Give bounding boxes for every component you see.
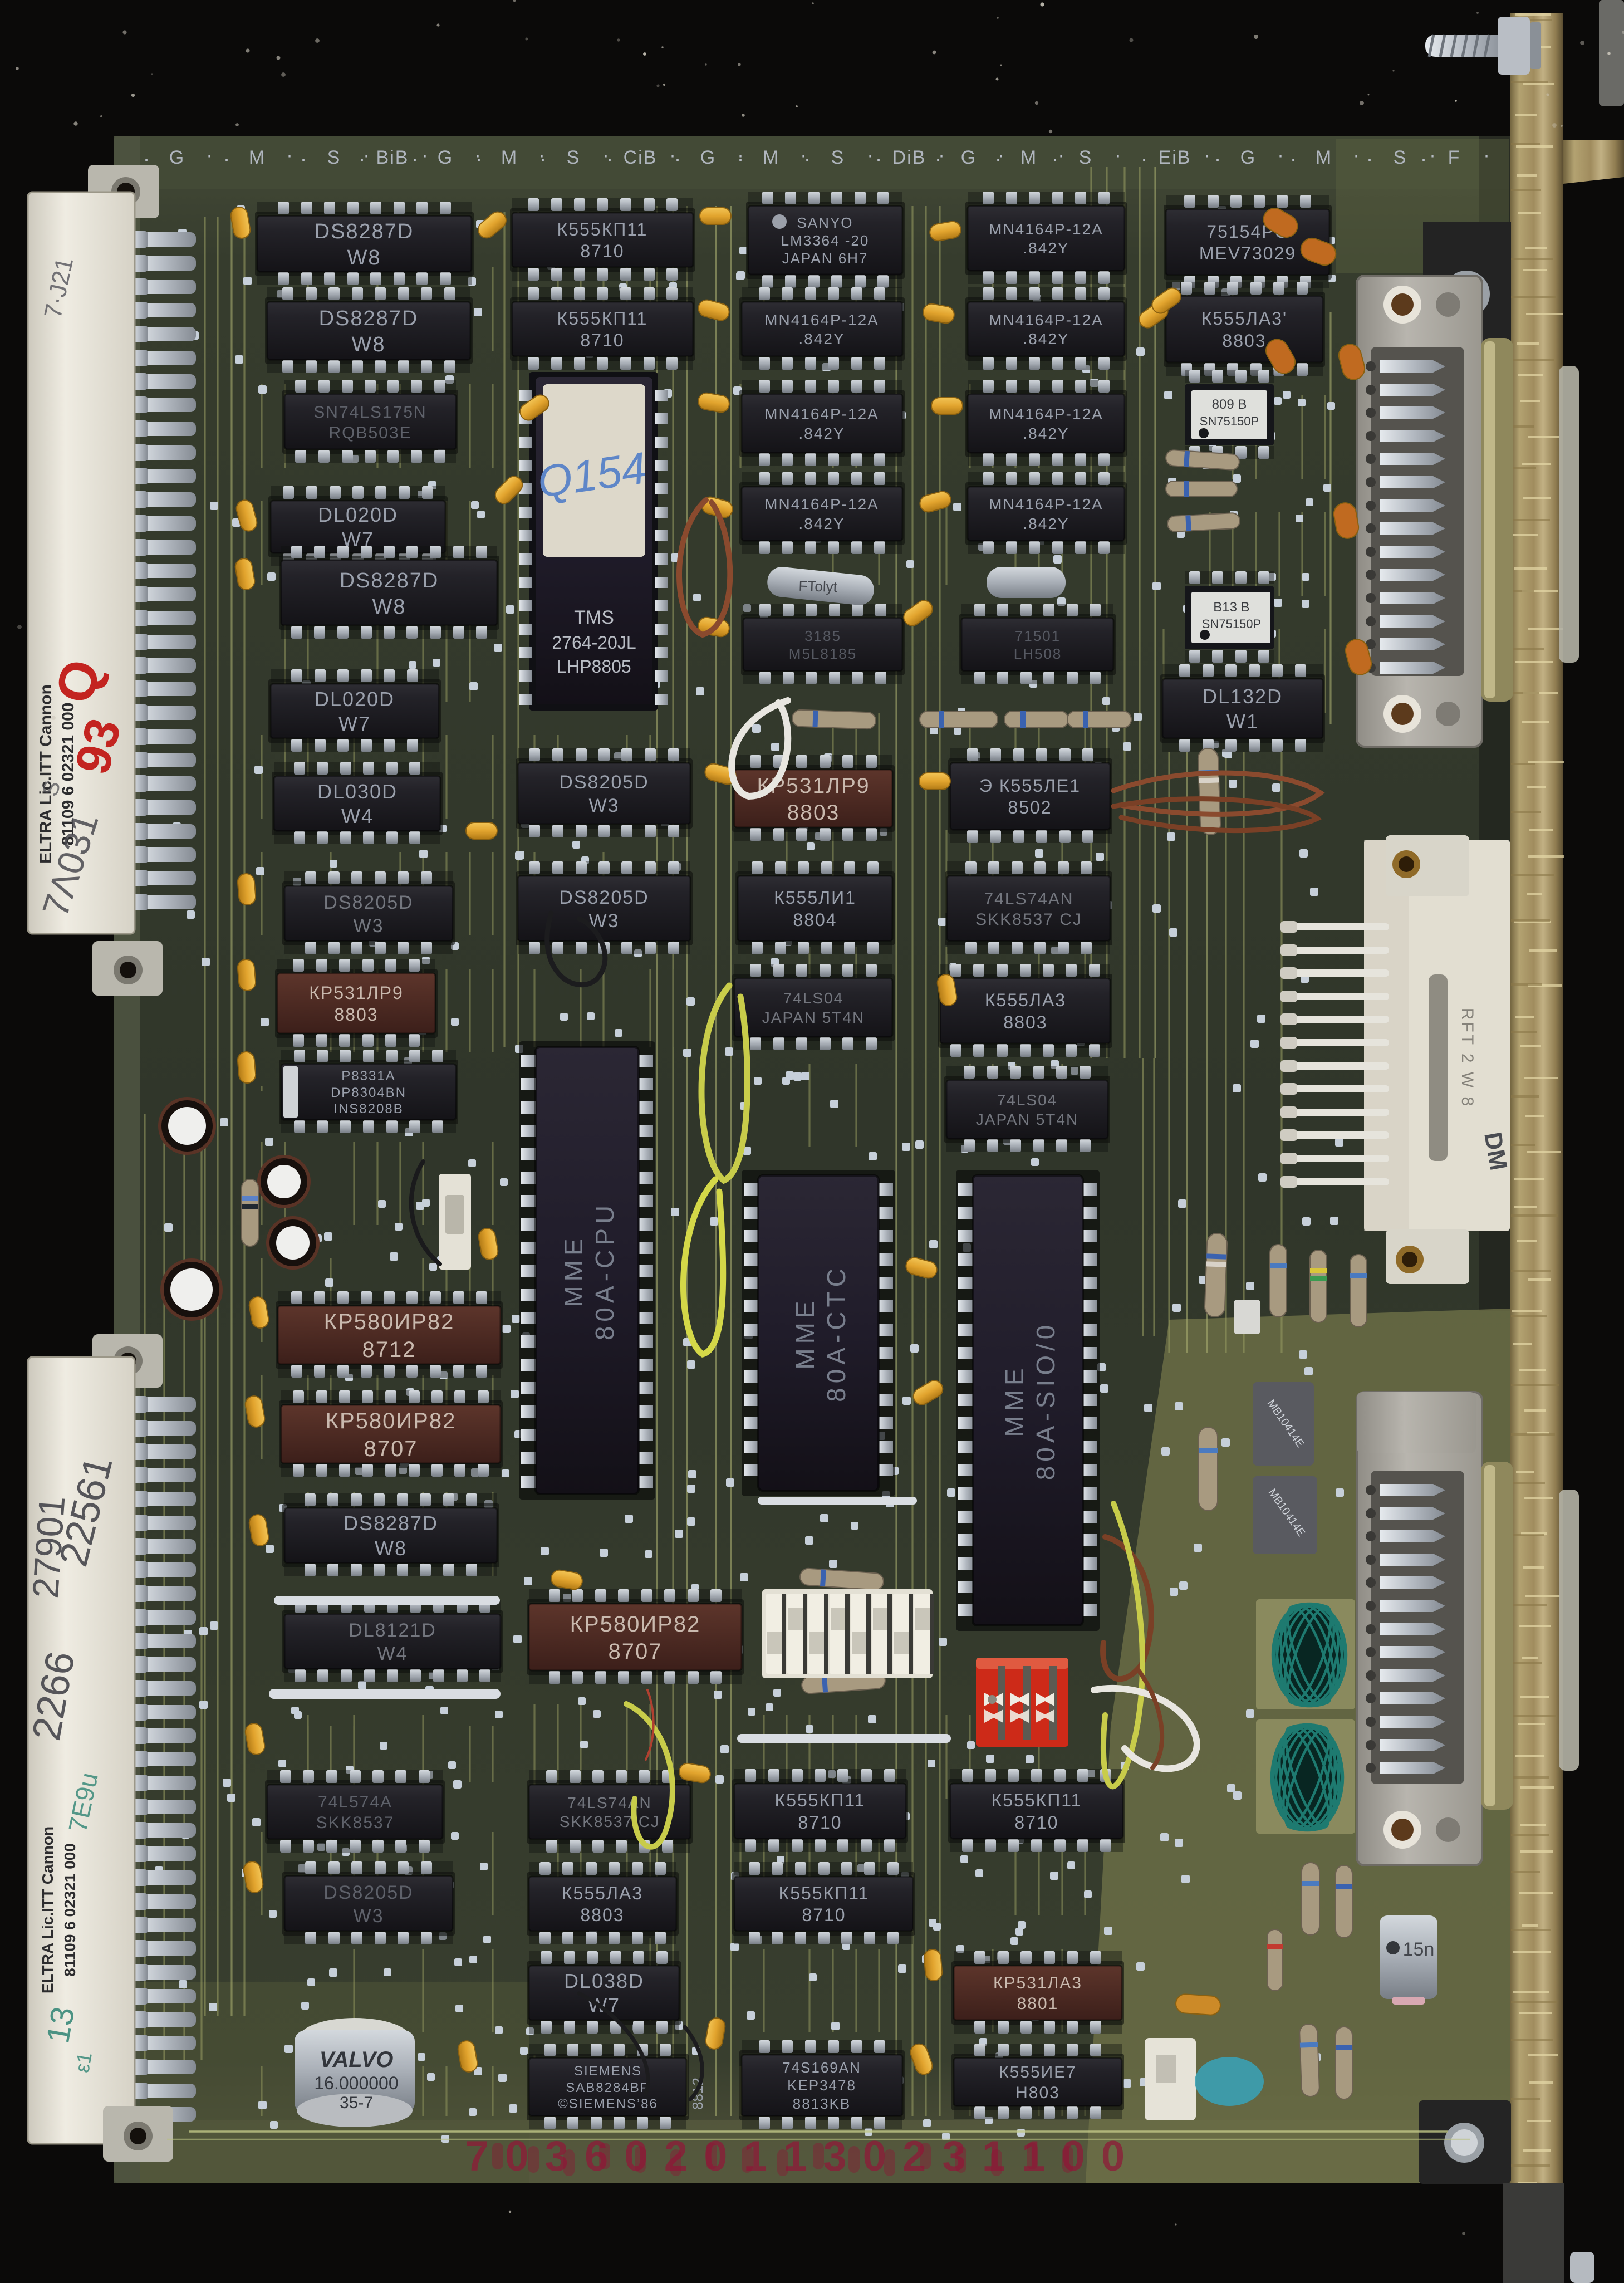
svg-text:ε1: ε1 (70, 2051, 96, 2075)
svg-text:13: 13 (40, 2004, 81, 2046)
svg-text:DS8205D: DS8205D (559, 887, 649, 908)
svg-text:W8: W8 (352, 333, 386, 356)
svg-text:8710: 8710 (580, 241, 624, 261)
svg-text:8710: 8710 (802, 1905, 846, 1925)
svg-text:RFT 2 W 8: RFT 2 W 8 (1458, 1008, 1476, 1108)
svg-text:.: . (1367, 143, 1373, 166)
svg-text:MEV73029: MEV73029 (1199, 243, 1296, 263)
svg-text:W7: W7 (338, 712, 371, 735)
svg-text:.: . (412, 143, 418, 166)
svg-text:.: . (738, 143, 744, 166)
svg-text:15n: 15n (1403, 1939, 1435, 1960)
svg-text:8712: 8712 (362, 1338, 416, 1362)
svg-text:К555ЛИ1: К555ЛИ1 (774, 888, 856, 908)
svg-text:74S169AN: 74S169AN (782, 2059, 861, 2076)
svg-text:DL132D: DL132D (1203, 685, 1283, 708)
svg-text:W3: W3 (589, 795, 620, 816)
svg-text:W4: W4 (341, 805, 374, 827)
svg-text:.: . (1141, 143, 1147, 166)
svg-text:·: · (1204, 145, 1210, 166)
svg-text:.842Y: .842Y (1023, 515, 1069, 532)
svg-text:8813KB: 8813KB (793, 2095, 851, 2112)
svg-text:JAPAN 6H7: JAPAN 6H7 (782, 250, 869, 267)
svg-text:DL8121D: DL8121D (349, 1620, 436, 1641)
svg-text:80A-SIO/0: 80A-SIO/0 (1031, 1321, 1060, 1481)
svg-text:DS8287D: DS8287D (319, 307, 419, 330)
svg-text:74LS74AN: 74LS74AN (567, 1794, 651, 1811)
svg-text:W3: W3 (354, 915, 384, 937)
svg-text:.: . (607, 143, 613, 166)
svg-text:M: M (501, 147, 518, 168)
svg-text:809 B: 809 B (1212, 397, 1247, 412)
svg-text:·: · (1483, 145, 1489, 166)
svg-text:8803: 8803 (580, 1905, 624, 1925)
svg-text:S: S (1079, 147, 1093, 168)
svg-text:·: · (206, 145, 212, 166)
svg-text:.842Y: .842Y (1023, 330, 1069, 347)
svg-text:SAB8284BP: SAB8284BP (566, 2080, 650, 2095)
svg-text:·: · (1115, 145, 1121, 166)
svg-text:.: . (359, 143, 365, 166)
svg-text:КР580ИР82: КР580ИР82 (324, 1310, 455, 1334)
svg-text:.: . (540, 143, 546, 166)
svg-text:S: S (831, 147, 845, 168)
svg-text:CiB: CiB (624, 147, 658, 168)
svg-text:·: · (1058, 145, 1064, 166)
svg-text:G: G (700, 147, 716, 168)
svg-text:.: . (224, 143, 230, 166)
svg-text:КР531ЛР9: КР531ЛР9 (309, 983, 404, 1003)
svg-text:©SIEMENS’86: ©SIEMENS’86 (558, 2096, 658, 2111)
svg-text:M: M (249, 147, 266, 168)
svg-text:S: S (567, 147, 581, 168)
svg-text:.: . (995, 143, 1002, 166)
svg-text:SN74LS175N: SN74LS175N (313, 403, 426, 422)
svg-text:8803: 8803 (787, 801, 840, 825)
svg-text:DS8205D: DS8205D (323, 892, 413, 913)
svg-text:G: G (1240, 147, 1256, 168)
svg-text:80A-CPU: 80A-CPU (590, 1201, 619, 1340)
svg-text:MN4164P-12A: MN4164P-12A (989, 221, 1103, 238)
svg-text:КР580ИР82: КР580ИР82 (326, 1409, 457, 1433)
svg-text:74LS04: 74LS04 (997, 1091, 1058, 1109)
svg-text:К555КП11: К555КП11 (557, 219, 648, 239)
svg-text:8707: 8707 (364, 1437, 418, 1461)
svg-text:80A-CTC: 80A-CTC (822, 1264, 851, 1402)
svg-text:DS8287D: DS8287D (344, 1512, 438, 1535)
svg-text:SIEMENS: SIEMENS (574, 2064, 642, 2079)
svg-text:SANYO: SANYO (797, 214, 853, 231)
svg-text:DP8304BN: DP8304BN (331, 1085, 406, 1100)
svg-text:S: S (1394, 147, 1407, 168)
svg-text:W8: W8 (375, 1537, 407, 1560)
svg-text:G: G (169, 147, 185, 168)
svg-text:M: M (763, 147, 779, 168)
svg-text:INS8208B: INS8208B (333, 1101, 403, 1116)
svg-text:КР531ЛА3: КР531ЛА3 (993, 1974, 1082, 1992)
svg-text:8801: 8801 (1017, 1995, 1059, 2013)
svg-text:Н803: Н803 (1015, 2084, 1060, 2102)
svg-text:Э К555ЛЕ1: Э К555ЛЕ1 (979, 776, 1081, 796)
svg-text:16.000000: 16.000000 (314, 2073, 398, 2093)
svg-text:ELTRA Lic.ITT Cannon: ELTRA Lic.ITT Cannon (39, 1826, 56, 1993)
svg-text:3185: 3185 (804, 628, 841, 644)
svg-text:M: M (1020, 147, 1037, 168)
svg-text:DL038D: DL038D (564, 1970, 644, 1992)
svg-text:8804: 8804 (793, 910, 837, 930)
svg-text:MN4164P-12A: MN4164P-12A (764, 496, 879, 513)
svg-text:DL020D: DL020D (318, 503, 398, 526)
svg-text:M5L8185: M5L8185 (789, 645, 857, 662)
svg-text:B13 B: B13 B (1213, 600, 1249, 615)
svg-text:MME: MME (559, 1234, 588, 1307)
svg-text:W8: W8 (347, 246, 381, 270)
svg-text:KEP3478: KEP3478 (787, 2077, 856, 2094)
svg-text:74LS74AN: 74LS74AN (984, 890, 1073, 908)
svg-text:VALVO: VALVO (320, 2047, 394, 2072)
svg-text:DL020D: DL020D (315, 688, 395, 711)
svg-text:8812: 8812 (689, 2078, 706, 2110)
svg-text:8502: 8502 (1008, 797, 1052, 817)
svg-text:W7: W7 (588, 1994, 620, 2017)
svg-text:2764-20JL: 2764-20JL (552, 633, 636, 653)
svg-text:.: . (1291, 143, 1297, 166)
svg-text:P8331A: P8331A (341, 1069, 395, 1084)
svg-text:.842Y: .842Y (1023, 239, 1069, 257)
svg-text:К555ЛА3': К555ЛА3' (1201, 308, 1287, 329)
svg-text:.: . (804, 143, 811, 166)
svg-text:К555ЛА3: К555ЛА3 (562, 1883, 643, 1903)
svg-text:DS8205D: DS8205D (323, 1882, 413, 1903)
svg-text:·: · (286, 145, 292, 166)
svg-text:G: G (961, 147, 977, 168)
svg-text:SKK8537 CJ: SKK8537 CJ (975, 910, 1082, 929)
svg-text:К555КП11: К555КП11 (557, 308, 648, 329)
svg-text:W1: W1 (1226, 710, 1259, 733)
svg-text:К555ИЕ7: К555ИЕ7 (999, 2063, 1077, 2081)
svg-text:MN4164P-12A: MN4164P-12A (989, 405, 1103, 423)
svg-text:DiB: DiB (892, 147, 926, 168)
svg-text:.: . (144, 143, 150, 166)
svg-text:·: · (421, 145, 428, 166)
svg-text:F: F (1448, 147, 1461, 168)
svg-text:MN4164P-12A: MN4164P-12A (989, 311, 1103, 329)
svg-text:К555КП11: К555КП11 (775, 1790, 866, 1810)
svg-text:JAPAN 5T4N: JAPAN 5T4N (762, 1009, 865, 1026)
svg-text:BiB: BiB (376, 147, 409, 168)
svg-text:SKK8537 CJ: SKK8537 CJ (560, 1813, 660, 1830)
svg-text:ELTRA Lic.ITT Cannon: ELTRA Lic.ITT Cannon (37, 684, 55, 864)
svg-text:W8: W8 (372, 595, 406, 619)
svg-text:КР580ИР82: КР580ИР82 (570, 1612, 701, 1637)
svg-text:DS8205D: DS8205D (559, 772, 649, 793)
svg-text:MME: MME (791, 1296, 820, 1369)
svg-text:.842Y: .842Y (798, 330, 845, 347)
svg-text:·: · (1277, 145, 1283, 166)
svg-text:LHP8805: LHP8805 (557, 657, 631, 677)
svg-text:.: . (1052, 143, 1058, 166)
svg-text:TMS: TMS (574, 607, 614, 628)
svg-text:8803: 8803 (1222, 331, 1266, 351)
svg-text:74LS04: 74LS04 (783, 989, 844, 1007)
svg-text:·: · (867, 145, 873, 166)
svg-text:8710: 8710 (1014, 1812, 1058, 1833)
svg-text:SN75150P: SN75150P (1202, 617, 1261, 631)
svg-text:74L574A: 74L574A (318, 1793, 392, 1811)
svg-text:MME: MME (1000, 1364, 1029, 1437)
svg-text:8710: 8710 (580, 330, 624, 350)
svg-text:.842Y: .842Y (798, 425, 845, 442)
svg-text:К555КП11: К555КП11 (779, 1883, 870, 1903)
svg-text:MN4164P-12A: MN4164P-12A (989, 496, 1103, 513)
svg-text:81109 6 02321 000: 81109 6 02321 000 (61, 1843, 78, 1977)
svg-text:.: . (1215, 143, 1221, 166)
svg-text:·: · (1353, 145, 1359, 166)
svg-text:SN75150P: SN75150P (1200, 414, 1259, 428)
svg-text:.: . (476, 143, 482, 166)
svg-text:DL030D: DL030D (317, 780, 398, 803)
svg-text:JAPAN 5T4N: JAPAN 5T4N (976, 1111, 1078, 1128)
svg-text:К555КП11: К555КП11 (992, 1790, 1082, 1810)
svg-text:DS8287D: DS8287D (340, 569, 439, 592)
svg-text:EiB: EiB (1159, 147, 1191, 168)
svg-text:8803: 8803 (334, 1005, 378, 1025)
svg-text:S: S (327, 147, 341, 168)
svg-text:·: · (1429, 145, 1435, 166)
svg-text:RQB503E: RQB503E (328, 424, 411, 442)
svg-text:8710: 8710 (798, 1812, 842, 1833)
svg-text:8803: 8803 (1003, 1012, 1047, 1032)
svg-text:.: . (675, 143, 681, 166)
svg-text:К555ЛА3: К555ЛА3 (985, 990, 1066, 1010)
svg-text:.: . (876, 143, 882, 166)
svg-text:.: . (301, 143, 307, 166)
svg-text:LM3364 -20: LM3364 -20 (781, 232, 870, 249)
svg-text:.842Y: .842Y (798, 515, 845, 532)
svg-text:FTolyt: FTolyt (798, 577, 838, 595)
svg-text:MN4164P-12A: MN4164P-12A (764, 405, 879, 423)
svg-text:W3: W3 (354, 1905, 384, 1927)
svg-text:.: . (935, 143, 941, 166)
svg-text:DS8287D: DS8287D (315, 220, 414, 243)
svg-text:SKK8537: SKK8537 (316, 1814, 395, 1832)
svg-text:LH508: LH508 (1014, 645, 1062, 662)
svg-text:.842Y: .842Y (1023, 425, 1069, 442)
svg-text:8707: 8707 (609, 1639, 663, 1664)
svg-text:MN4164P-12A: MN4164P-12A (764, 311, 879, 329)
svg-text:W4: W4 (377, 1643, 408, 1664)
svg-text:35-7: 35-7 (340, 2094, 373, 2112)
svg-text:G: G (438, 147, 453, 168)
svg-text:71501: 71501 (1015, 628, 1061, 644)
svg-text:M: M (1316, 147, 1332, 168)
svg-text:.: . (1421, 143, 1427, 166)
